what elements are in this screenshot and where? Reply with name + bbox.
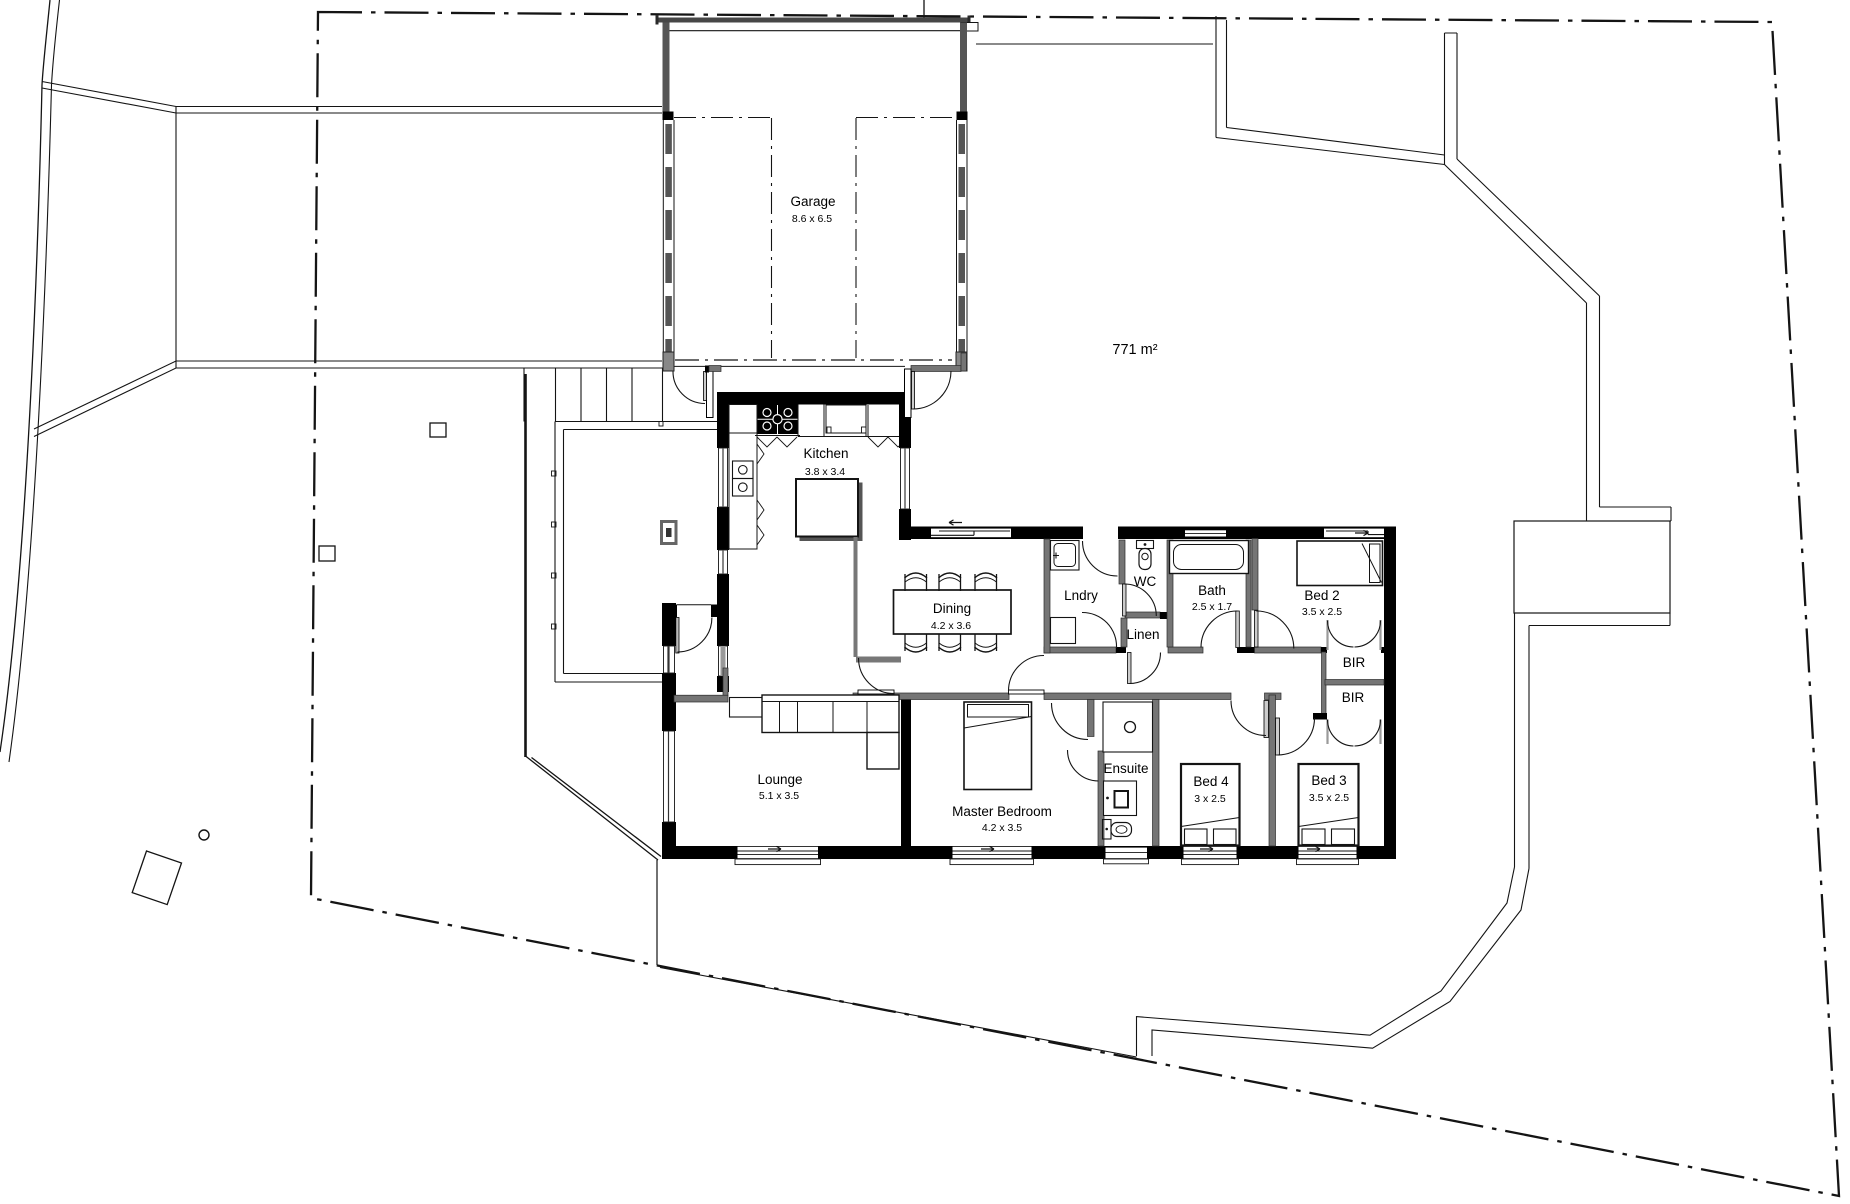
svg-text:3.5 x 2.5: 3.5 x 2.5 — [1302, 606, 1342, 618]
svg-text:Dining: Dining — [933, 601, 971, 616]
svg-text:4.2 x 3.5: 4.2 x 3.5 — [982, 822, 1022, 834]
svg-text:Lounge: Lounge — [757, 772, 802, 787]
svg-text:Lndry: Lndry — [1064, 588, 1098, 603]
svg-text:Ensuite: Ensuite — [1103, 761, 1148, 776]
svg-text:3 x 2.5: 3 x 2.5 — [1194, 793, 1226, 805]
svg-text:4.2 x 3.6: 4.2 x 3.6 — [931, 620, 971, 632]
svg-text:Linen: Linen — [1126, 627, 1159, 642]
svg-text:5.1 x 3.5: 5.1 x 3.5 — [759, 790, 799, 802]
svg-text:771 m²: 771 m² — [1112, 342, 1157, 358]
svg-text:Bed 4: Bed 4 — [1193, 774, 1229, 789]
svg-text:3.5 x 2.5: 3.5 x 2.5 — [1309, 792, 1349, 804]
svg-text:Garage: Garage — [790, 194, 835, 209]
svg-text:3.8 x 3.4: 3.8 x 3.4 — [805, 466, 845, 478]
svg-text:Master Bedroom: Master Bedroom — [952, 804, 1052, 819]
svg-text:Bath: Bath — [1198, 583, 1226, 598]
svg-text:BIR: BIR — [1342, 690, 1365, 705]
svg-text:Bed 3: Bed 3 — [1311, 773, 1346, 788]
svg-text:WC: WC — [1134, 574, 1157, 589]
svg-text:8.6 x 6.5: 8.6 x 6.5 — [792, 213, 832, 225]
svg-text:Bed 2: Bed 2 — [1304, 588, 1339, 603]
svg-text:2.5 x 1.7: 2.5 x 1.7 — [1192, 601, 1232, 613]
svg-text:Kitchen: Kitchen — [803, 446, 848, 461]
svg-text:BIR: BIR — [1343, 655, 1366, 670]
